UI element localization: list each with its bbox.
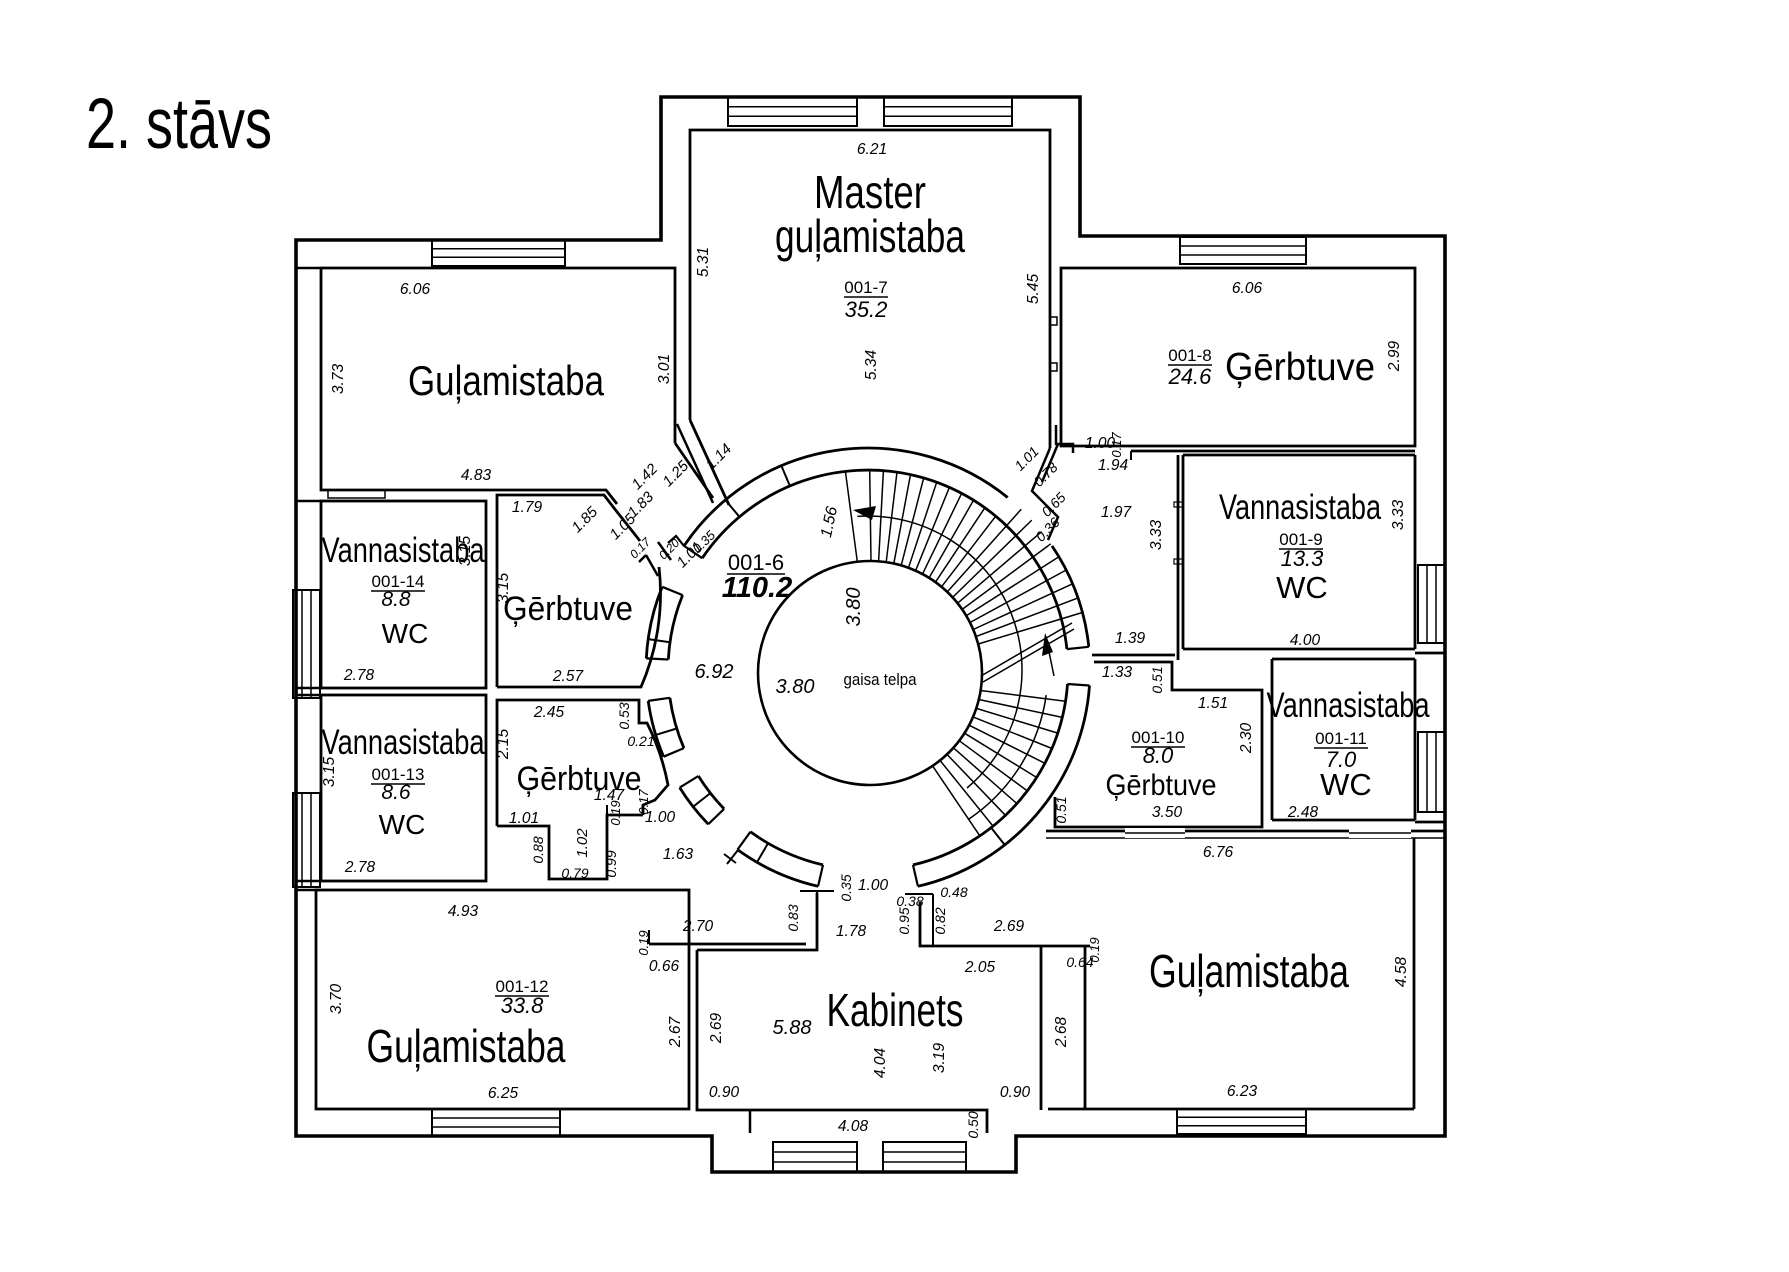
svg-text:001-7: 001-7 (844, 278, 887, 297)
svg-text:1.33: 1.33 (1102, 664, 1133, 681)
svg-text:0.53: 0.53 (616, 702, 632, 729)
svg-text:2.69: 2.69 (708, 1013, 725, 1045)
svg-text:guļamistaba: guļamistaba (775, 210, 965, 262)
svg-text:WC: WC (382, 618, 429, 649)
svg-text:2.67: 2.67 (667, 1016, 684, 1049)
svg-text:0.88: 0.88 (530, 836, 546, 863)
svg-text:8.0: 8.0 (1143, 743, 1174, 768)
svg-text:gaisa telpa: gaisa telpa (844, 670, 917, 689)
svg-text:1.01: 1.01 (509, 810, 539, 827)
svg-text:3.01: 3.01 (656, 354, 673, 384)
svg-text:1.94: 1.94 (1098, 457, 1129, 474)
svg-text:4.04: 4.04 (872, 1048, 889, 1079)
svg-text:0.19: 0.19 (636, 930, 651, 955)
svg-text:5.88: 5.88 (773, 1017, 812, 1039)
svg-text:0.21: 0.21 (627, 733, 654, 749)
svg-text:3.80: 3.80 (776, 676, 815, 698)
svg-text:0.51: 0.51 (1053, 796, 1069, 823)
svg-text:1.97: 1.97 (1101, 504, 1133, 521)
svg-text:0.82: 0.82 (932, 907, 948, 934)
svg-text:Ģērbtuve: Ģērbtuve (1225, 346, 1375, 389)
svg-text:0.95: 0.95 (896, 907, 912, 934)
svg-text:1.63: 1.63 (663, 846, 694, 863)
svg-text:6.06: 6.06 (1232, 280, 1263, 297)
svg-text:1.51: 1.51 (1198, 695, 1228, 712)
svg-text:3.15: 3.15 (457, 536, 474, 567)
svg-text:3.70: 3.70 (328, 984, 345, 1015)
svg-text:2.15: 2.15 (495, 729, 512, 761)
svg-text:0.17: 0.17 (1109, 432, 1124, 458)
svg-text:5.45: 5.45 (1025, 274, 1042, 305)
svg-text:Guļamistaba: Guļamistaba (1149, 945, 1349, 997)
svg-text:4.58: 4.58 (1393, 957, 1410, 988)
svg-text:2.99: 2.99 (1386, 341, 1403, 373)
svg-text:24.6: 24.6 (1168, 364, 1213, 389)
svg-text:35.2: 35.2 (845, 297, 888, 322)
svg-text:WC: WC (379, 809, 426, 840)
svg-text:Vannasistaba: Vannasistaba (1267, 686, 1430, 725)
svg-text:0.19: 0.19 (608, 800, 623, 825)
svg-text:33.8: 33.8 (501, 993, 545, 1018)
svg-text:3.73: 3.73 (330, 364, 347, 395)
svg-text:1.78: 1.78 (836, 923, 867, 940)
svg-text:3.33: 3.33 (1390, 500, 1407, 531)
svg-text:0.50: 0.50 (965, 1111, 981, 1138)
svg-text:2.45: 2.45 (533, 704, 565, 721)
svg-text:2.48: 2.48 (1287, 804, 1319, 821)
svg-text:WC: WC (1276, 570, 1328, 605)
svg-text:5.31: 5.31 (695, 247, 712, 277)
svg-text:4.93: 4.93 (448, 903, 479, 920)
svg-text:13.3: 13.3 (1281, 546, 1325, 571)
svg-text:3.50: 3.50 (1152, 804, 1183, 821)
svg-text:Ģērbtuve: Ģērbtuve (503, 590, 633, 628)
svg-text:0.51: 0.51 (1149, 666, 1165, 693)
svg-text:0.66: 0.66 (649, 958, 680, 975)
svg-text:1.39: 1.39 (1115, 630, 1146, 647)
svg-text:3.80: 3.80 (843, 588, 865, 627)
svg-text:0.90: 0.90 (1000, 1084, 1031, 1101)
svg-text:2.78: 2.78 (344, 859, 376, 876)
svg-text:0.38: 0.38 (896, 893, 923, 909)
svg-text:6.25: 6.25 (488, 1085, 519, 1102)
svg-text:0.90: 0.90 (709, 1084, 740, 1101)
svg-text:2.68: 2.68 (1053, 1017, 1070, 1049)
svg-text:0.79: 0.79 (561, 865, 588, 881)
svg-text:2. stāvs: 2. stāvs (86, 85, 272, 164)
svg-text:WC: WC (1320, 767, 1372, 802)
svg-text:2.70: 2.70 (682, 918, 714, 935)
svg-text:5.34: 5.34 (863, 350, 880, 381)
svg-text:0.17: 0.17 (636, 789, 651, 815)
svg-text:Vannasistaba: Vannasistaba (322, 723, 485, 762)
svg-text:3.15: 3.15 (321, 757, 338, 788)
svg-text:6.06: 6.06 (400, 281, 431, 298)
svg-text:6.92: 6.92 (695, 661, 734, 683)
svg-text:1.00: 1.00 (858, 877, 889, 894)
svg-text:4.08: 4.08 (838, 1118, 869, 1135)
svg-text:4.00: 4.00 (1290, 632, 1321, 649)
svg-text:2.57: 2.57 (552, 668, 585, 685)
svg-text:4.83: 4.83 (461, 467, 492, 484)
svg-text:2.05: 2.05 (964, 959, 996, 976)
svg-text:Kabinets: Kabinets (827, 984, 964, 1036)
svg-text:6.21: 6.21 (857, 141, 887, 158)
svg-text:Guļamistaba: Guļamistaba (408, 357, 605, 404)
svg-text:8.8: 8.8 (381, 588, 411, 611)
svg-text:3.19: 3.19 (931, 1043, 948, 1074)
svg-text:2.30: 2.30 (1238, 723, 1255, 755)
svg-text:0.19: 0.19 (1087, 937, 1102, 962)
svg-text:001-11: 001-11 (1315, 729, 1367, 748)
svg-text:2.78: 2.78 (343, 667, 375, 684)
svg-text:6.76: 6.76 (1203, 844, 1234, 861)
svg-text:Guļamistaba: Guļamistaba (367, 1020, 566, 1072)
svg-text:0.35: 0.35 (838, 874, 854, 901)
svg-text:Ģērbtuve: Ģērbtuve (1106, 769, 1217, 802)
svg-text:Vannasistaba: Vannasistaba (1219, 488, 1381, 527)
svg-text:0.83: 0.83 (785, 904, 801, 931)
svg-text:0.48: 0.48 (940, 884, 967, 900)
svg-text:8.6: 8.6 (381, 781, 411, 804)
svg-text:3.33: 3.33 (1148, 520, 1165, 551)
svg-text:2.69: 2.69 (993, 918, 1025, 935)
svg-text:0.99: 0.99 (603, 850, 619, 877)
svg-text:1.79: 1.79 (512, 499, 543, 516)
svg-text:001-8: 001-8 (1168, 346, 1211, 365)
svg-text:110.2: 110.2 (722, 572, 792, 604)
svg-text:6.23: 6.23 (1227, 1083, 1258, 1100)
svg-text:1.02: 1.02 (574, 828, 591, 858)
